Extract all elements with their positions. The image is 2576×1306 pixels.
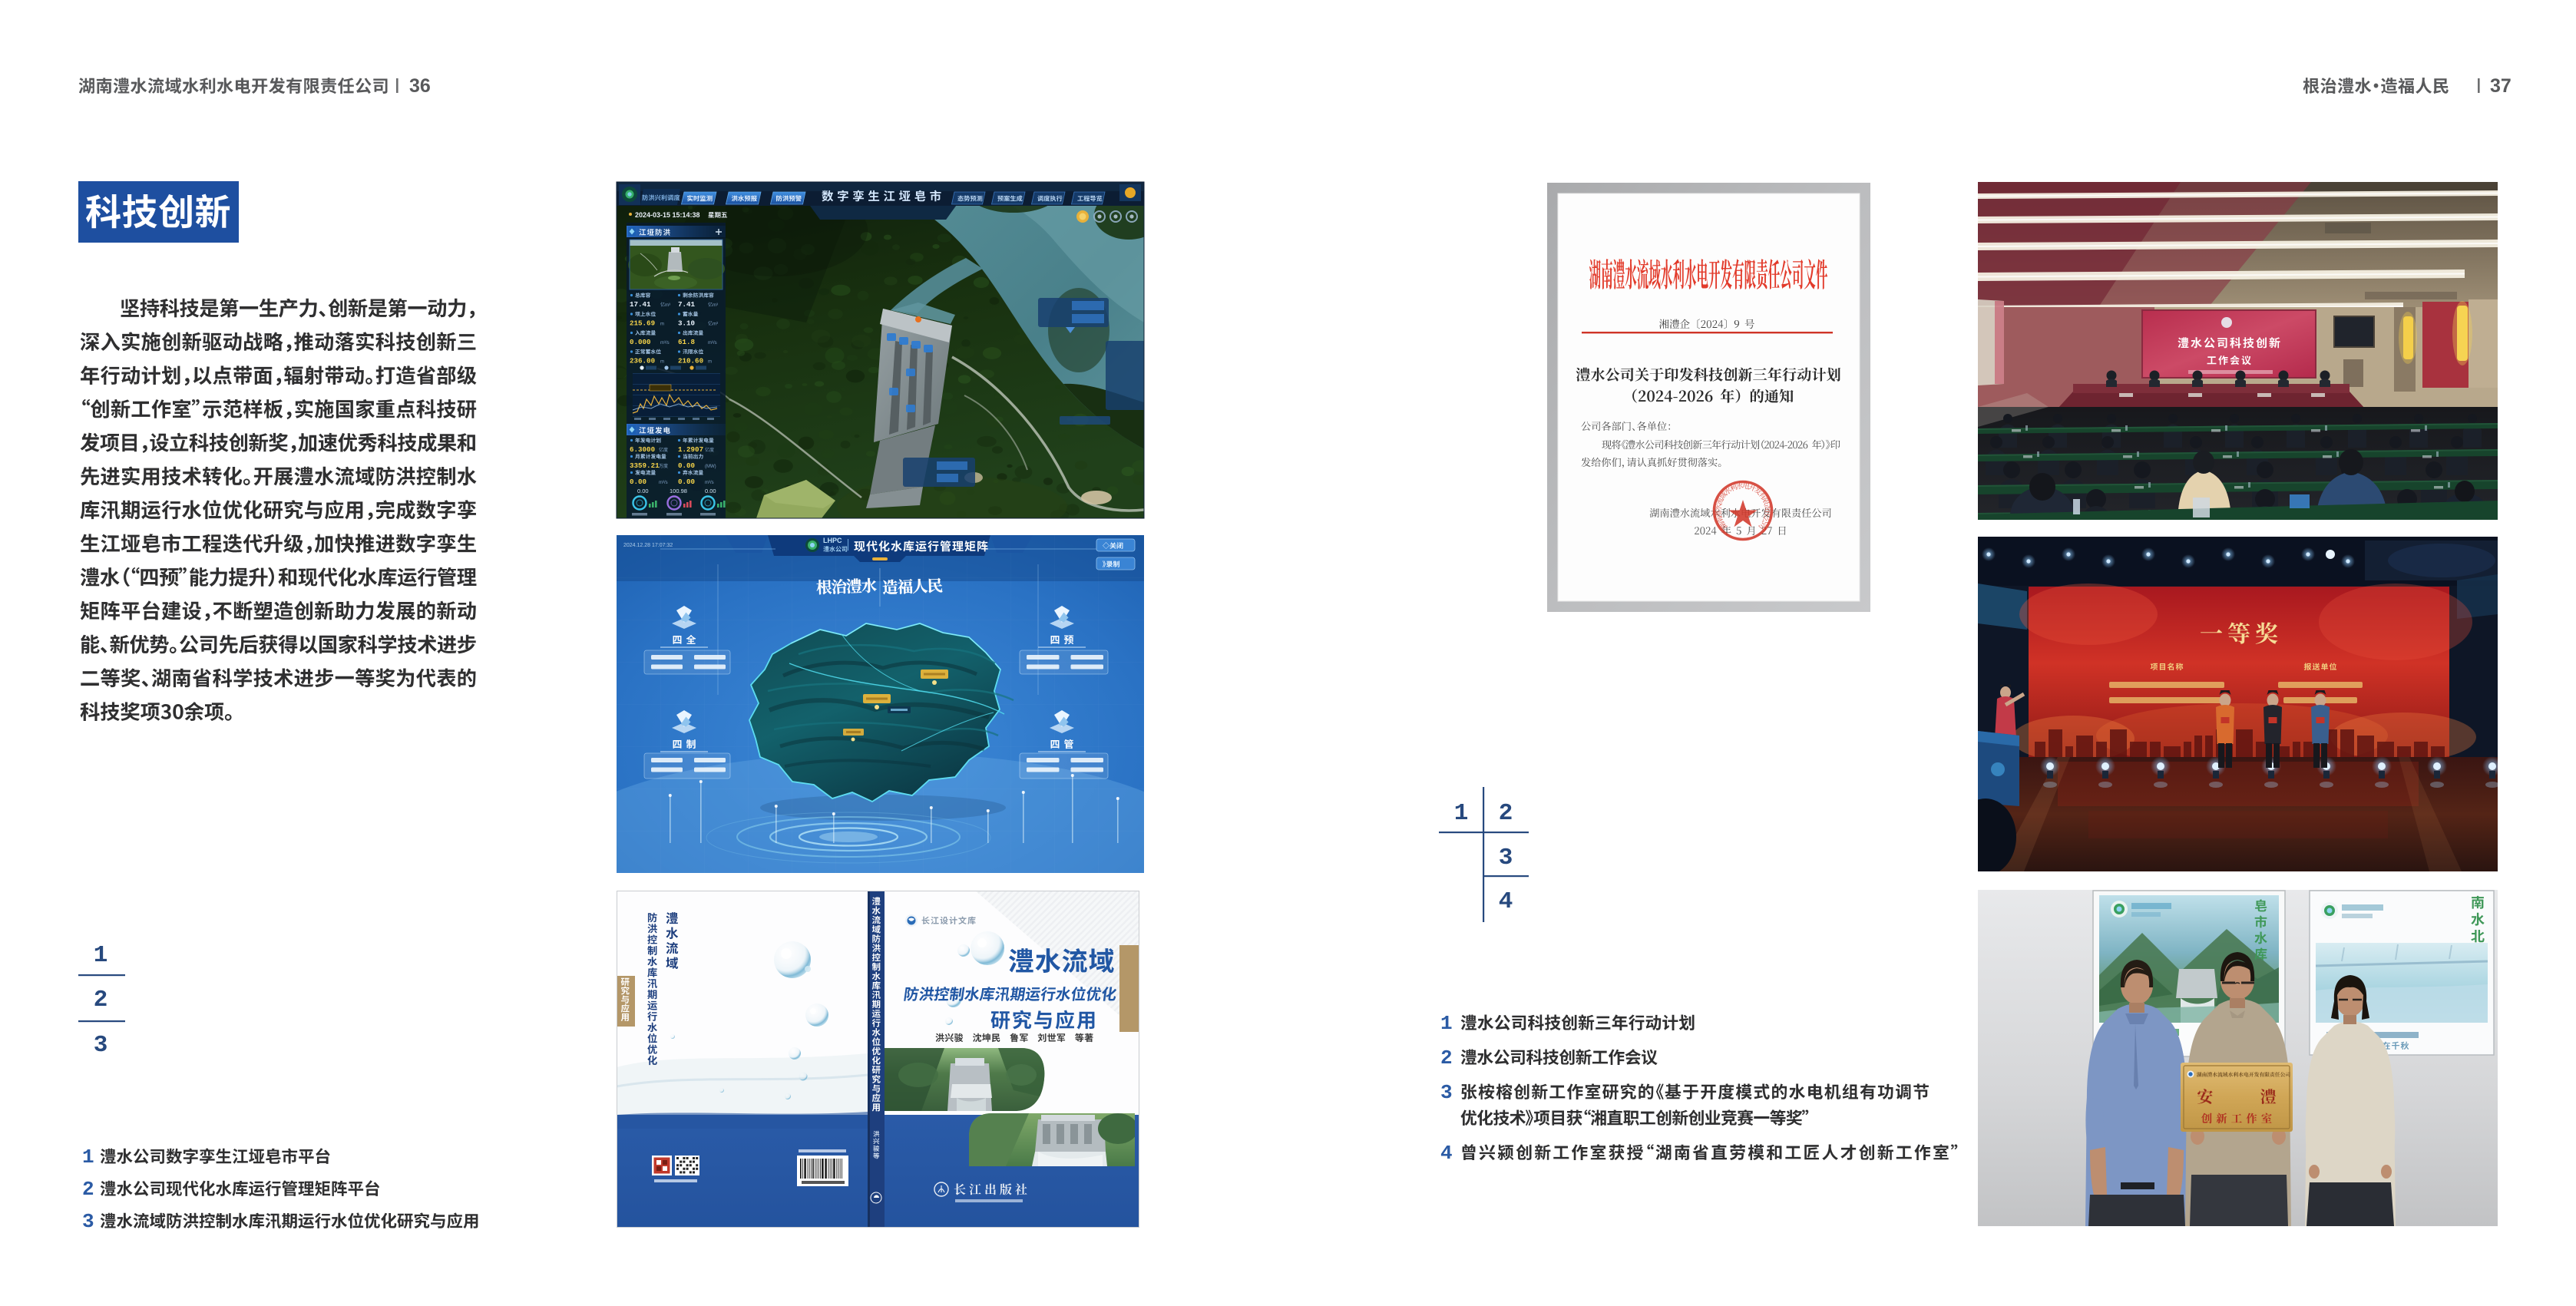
svg-text:m³/s: m³/s [708,341,717,346]
svg-text:1.2907: 1.2907 [678,445,703,454]
svg-text:2: 2 [94,987,108,1013]
svg-text:m: m [660,322,664,327]
svg-text:210.60: 210.60 [678,357,703,365]
svg-text:3: 3 [1440,1081,1453,1104]
svg-text:1: 1 [1440,1012,1453,1035]
svg-text:3: 3 [82,1210,94,1233]
svg-text:1: 1 [1454,800,1469,827]
svg-text:m³/s: m³/s [659,481,668,485]
svg-text:1: 1 [82,1146,94,1169]
svg-text:0.00: 0.00 [678,478,695,486]
svg-text:215.69: 215.69 [630,319,655,328]
svg-text:m: m [708,360,712,365]
svg-text:3359.21: 3359.21 [630,461,660,470]
svg-text:2: 2 [82,1178,94,1201]
svg-text:3: 3 [94,1032,108,1059]
svg-text:2024.12.28 17:07:32: 2024.12.28 17:07:32 [623,543,673,548]
svg-text:0.00: 0.00 [630,478,646,486]
svg-text:(MW): (MW) [705,465,716,469]
svg-text:m³/s: m³/s [660,341,670,346]
svg-text:万度: 万度 [659,463,668,469]
svg-text:LHPC: LHPC [823,537,842,544]
svg-text:0.000: 0.000 [630,338,651,346]
svg-text:0.00: 0.00 [678,461,695,470]
svg-text:6.3000: 6.3000 [630,445,655,454]
svg-text:3.10: 3.10 [678,319,695,328]
svg-text:亿m³: 亿m³ [660,302,670,308]
svg-text:m³/s: m³/s [705,481,714,485]
svg-text:4: 4 [1440,1142,1453,1165]
svg-text:2: 2 [1440,1046,1453,1070]
svg-text:亿m³: 亿m³ [708,321,718,327]
svg-text:37: 37 [2490,75,2512,97]
svg-text:17.41: 17.41 [630,300,651,309]
svg-text:亿度: 亿度 [705,447,714,453]
svg-text:亿度: 亿度 [659,447,668,453]
svg-text:2024-03-15 15:14:38: 2024-03-15 15:14:38 [635,211,700,219]
svg-text:0.00: 0.00 [637,488,649,494]
svg-text:7.41: 7.41 [678,300,696,309]
svg-text:2: 2 [1499,800,1513,827]
svg-text:m: m [660,360,664,365]
svg-text:4: 4 [1499,888,1513,915]
svg-text:1: 1 [94,942,108,969]
svg-text:亿m³: 亿m³ [708,302,718,308]
svg-text:0.00: 0.00 [705,488,716,494]
svg-text:61.8: 61.8 [678,338,696,346]
svg-text:36: 36 [409,75,431,97]
svg-text:3: 3 [1499,845,1513,871]
svg-text:236.00: 236.00 [630,357,655,365]
svg-text:100.98: 100.98 [670,488,687,494]
